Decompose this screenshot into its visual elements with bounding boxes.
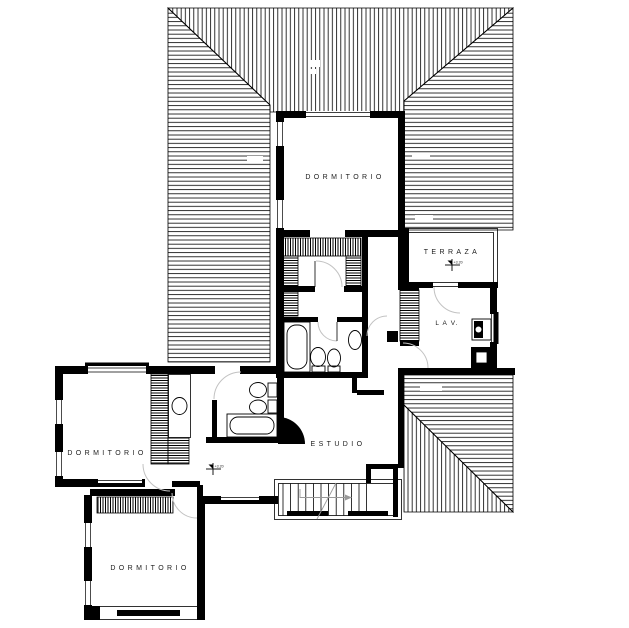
window-south-hall: [221, 496, 259, 504]
level-marker-terraza: +3.20: [445, 259, 463, 271]
level-value-terraza: +3.20: [454, 261, 463, 265]
room-label-dormitorio-top: DORMITORIO: [305, 174, 384, 181]
stair-inner-outline: [279, 484, 398, 516]
room-label-dormitorio-left: DORMITORIO: [67, 450, 146, 457]
door-arc-vestidor: [316, 261, 342, 287]
terraza-parapet-inner: [408, 233, 494, 283]
bidet-second-base: [268, 400, 277, 413]
level-marker-hall: +3.20: [206, 463, 224, 475]
bathtub-main-inner: [287, 325, 307, 369]
stair-arrow-head: [345, 495, 352, 501]
closet-hall-lav: [400, 290, 419, 341]
door-arc-terraza: [434, 287, 460, 313]
closet-vestidor-top: [283, 238, 361, 256]
window-dorm1-left-1: [276, 122, 284, 146]
floor-plan-drawing: DORMITORIO TERRAZA L A V. DORMITORIO EST…: [0, 0, 629, 628]
closet-dorm2-small: [168, 438, 189, 464]
stair-direction-arrow: [300, 489, 347, 498]
toilet-second-tank: [268, 383, 277, 397]
bidet-main: [328, 349, 341, 367]
bathroom-fixtures-second: [172, 383, 277, 438]
bathtub-second-inner: [230, 417, 274, 434]
bathroom-fixtures-main: [284, 322, 362, 372]
floor-plan-canvas: DORMITORIO TERRAZA L A V. DORMITORIO EST…: [0, 0, 629, 628]
sink-main: [349, 331, 362, 350]
window-dorm1-left-2: [276, 200, 284, 228]
washer-drum-icon: [476, 327, 482, 333]
staircase: [283, 483, 388, 519]
door-arc-bath-second: [214, 372, 241, 399]
window-dorm3-bottom: [85, 607, 205, 620]
window-dorm2-bottom: [98, 479, 142, 487]
closet-dorm3: [97, 497, 173, 513]
closet-vestidor-left: [283, 256, 298, 316]
terraza-parapet-outer: [404, 229, 498, 287]
closet-dorm2: [151, 374, 168, 464]
room-label-lav: L A V.: [435, 320, 458, 327]
toilet-second: [250, 383, 267, 398]
room-label-estudio: ESTUDIO: [311, 441, 366, 448]
window-dorm1-top: [306, 111, 370, 118]
door-arc-dorm3: [172, 493, 197, 518]
door-arc-dorm2: [143, 464, 170, 491]
water-heater-inner: [476, 352, 487, 363]
level-value-hall: +3.20: [215, 465, 224, 469]
bidet-second: [250, 400, 267, 414]
sink-vanity: [172, 398, 187, 415]
door-arc-lav: [403, 343, 428, 368]
stair-base-wall-2: [348, 511, 388, 516]
window-dorm3-left-2: [84, 581, 92, 605]
window-dorm3-left-1: [84, 523, 92, 547]
laundry-appliances: [471, 319, 492, 368]
stair-base-wall-1: [287, 511, 328, 516]
room-label-terraza: TERRAZA: [424, 249, 480, 256]
toilet-main: [311, 348, 326, 367]
door-arc-bath-main: [318, 322, 337, 341]
room-label-dormitorio-bottom: DORMITORIO: [110, 565, 189, 572]
window-dorm2-left-1: [55, 400, 63, 424]
door-arc-hall: [367, 316, 387, 336]
window-dorm2-top: [85, 363, 149, 375]
closet-vestidor-right: [346, 256, 361, 290]
window-dorm2-left-2: [55, 452, 63, 476]
